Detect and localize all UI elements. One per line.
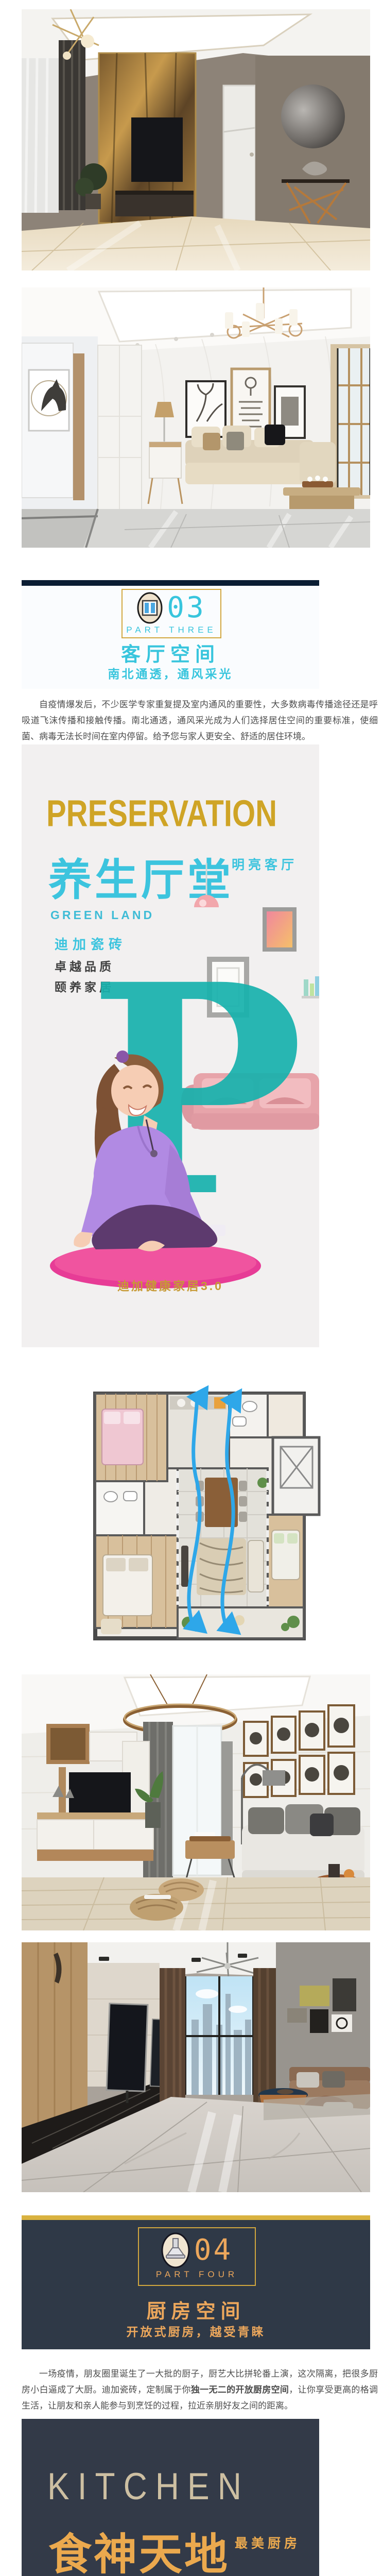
article-page: 03 PART THREE 客厅空间 南北通透，通风采光 自疫情爆发后，不少医学… bbox=[0, 0, 383, 2576]
round-mirror bbox=[281, 84, 345, 148]
section03-subtitle: 南北通透，通风采光 bbox=[22, 664, 319, 682]
section04-number: 04 bbox=[194, 2236, 233, 2265]
pendant-lamp bbox=[194, 863, 219, 907]
poster2-headline-cn: 食神天地 bbox=[48, 2520, 230, 2576]
tv-lowboard bbox=[37, 1812, 153, 1861]
bench bbox=[101, 1619, 121, 1634]
window-icon bbox=[137, 592, 163, 624]
section03-badge: 03 PART THREE bbox=[121, 589, 221, 638]
bathroom-left bbox=[95, 1481, 144, 1535]
modern-living-scene bbox=[22, 1674, 370, 1930]
paragraph-living-room: 自疫情爆发后，不少医学专家重复提及室内通风的重要性，大多数病毒传播途径还是呼吸道… bbox=[22, 697, 378, 744]
horse-artwork bbox=[29, 370, 69, 431]
city-window bbox=[185, 1976, 253, 2095]
poster2-headline-en: KITCHEN bbox=[47, 2464, 250, 2508]
poster-kitchen: KITCHEN 食神天地 最美厨房 GREEN LAND 迪加瓷砖 美食空间 K bbox=[22, 2419, 319, 2576]
left-hand bbox=[74, 1232, 93, 1247]
sink bbox=[242, 1401, 257, 1412]
section03-part-label: PART THREE bbox=[126, 625, 217, 635]
floor-plan-drawing bbox=[22, 1365, 370, 1667]
photo-modern-living-room bbox=[22, 1674, 370, 1930]
window-wood-screen bbox=[330, 344, 370, 499]
corridor-scene bbox=[22, 1942, 370, 2192]
poster1-footer: 迪加健康家居3.0 bbox=[22, 1276, 319, 1294]
section04-part-label: PART FOUR bbox=[156, 2269, 238, 2280]
floor-plan bbox=[22, 1365, 370, 1667]
entry-hallway-scene bbox=[22, 9, 370, 270]
door-handle bbox=[250, 152, 254, 157]
poster1-headline-en: PRESERVATION bbox=[46, 792, 277, 835]
section03-top-bar bbox=[22, 580, 319, 586]
sofa-plan bbox=[248, 1540, 264, 1592]
tv-plan bbox=[181, 1546, 188, 1587]
poster-preservation: PRESERVATION 养生厅堂 明亮客厅 GREEN LAND 迪加瓷砖 卓… bbox=[22, 744, 319, 1347]
photo-entry-hallway bbox=[22, 9, 370, 270]
section04-badge: 04 PART FOUR bbox=[138, 2227, 256, 2286]
tv-screen bbox=[131, 117, 183, 182]
woman-figure bbox=[74, 1050, 225, 1251]
meditating-woman bbox=[37, 1043, 279, 1301]
photo-bright-living-room bbox=[22, 287, 370, 548]
stove bbox=[214, 1397, 225, 1409]
section04-header: 04 PART FOUR 厨房空间 开放式厨房，越受青睐 bbox=[22, 2220, 370, 2349]
scrunchie bbox=[116, 1050, 129, 1063]
paragraph-kitchen-bold: 独一无二的开放厨房空间 bbox=[191, 2385, 289, 2395]
section03-number: 03 bbox=[167, 594, 205, 622]
section04-subtitle: 开放式厨房，越受青睐 bbox=[22, 2322, 370, 2340]
photo-corridor-living bbox=[22, 1942, 370, 2192]
paragraph-kitchen: 一场疫情，朋友圈里诞生了一大批的厨子，厨艺大比拼轮番上演，这次隔离，把很多厨房小… bbox=[22, 2366, 378, 2414]
balcony-chair bbox=[234, 1615, 245, 1625]
tv-screen bbox=[69, 1772, 131, 1812]
bathroom-top bbox=[229, 1394, 268, 1437]
shelf-bottles bbox=[302, 976, 319, 998]
toilet bbox=[233, 1417, 246, 1426]
living-rug bbox=[197, 1538, 246, 1595]
section03-title: 客厅空间 bbox=[22, 638, 319, 667]
section03-header: 03 PART THREE 客厅空间 南北通透，通风采光 bbox=[22, 586, 319, 689]
range-hood-icon bbox=[161, 2232, 190, 2268]
bright-living-scene bbox=[22, 287, 370, 548]
section04-title: 厨房空间 bbox=[22, 2295, 370, 2324]
door-frame bbox=[73, 353, 84, 500]
entry-foyer bbox=[268, 1394, 304, 1437]
section04-gold-bar bbox=[22, 2215, 370, 2220]
poster2-side-caption: 最美厨房 bbox=[235, 2533, 301, 2552]
